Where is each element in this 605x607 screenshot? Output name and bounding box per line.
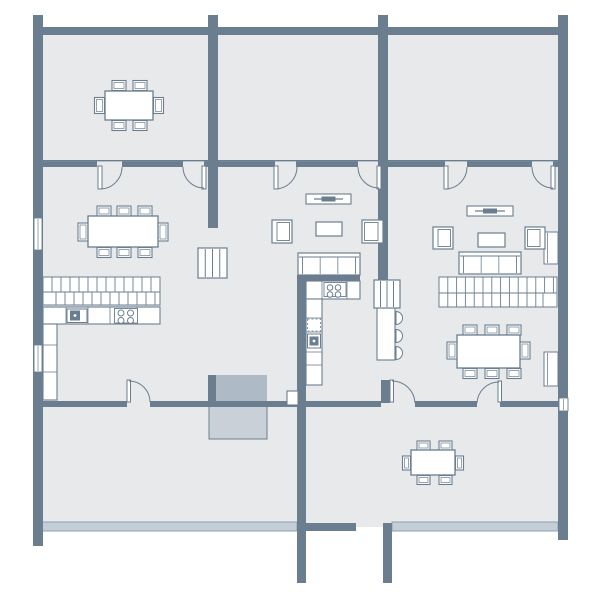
kitchen-sink — [67, 309, 87, 323]
terrace-edge-left — [38, 522, 297, 531]
coffee-table — [316, 222, 342, 236]
kitchen-counter — [43, 324, 57, 400]
wardrobe — [198, 248, 227, 278]
wall-balcony-seg — [379, 161, 445, 167]
wall-entry-right — [383, 523, 392, 583]
bar-counter — [377, 308, 395, 360]
floor-plan — [0, 0, 605, 607]
kitchen-open-shelf — [308, 319, 321, 331]
armchair — [525, 227, 545, 249]
wall-entry-top — [306, 523, 356, 531]
wall-post-left — [33, 15, 43, 546]
armchair — [272, 220, 292, 243]
staircase-left — [43, 277, 160, 305]
floor-plan-svg — [0, 0, 605, 607]
kitchen-sink — [308, 334, 321, 348]
wardrobe — [374, 280, 400, 308]
sofa — [298, 253, 360, 275]
kitchen-stove — [324, 283, 346, 298]
armchair — [433, 227, 453, 249]
patio-block-lower — [209, 406, 267, 439]
wall-cabinet — [287, 391, 298, 405]
wall-block-stub — [208, 375, 216, 406]
wall-bottom-seg — [33, 401, 127, 407]
wall-bottom-seg — [150, 401, 381, 407]
wall-balcony-seg — [296, 161, 358, 167]
wall-post-midleft — [208, 15, 218, 228]
terrace-edge-right — [392, 522, 558, 531]
wall-balcony-seg — [204, 161, 275, 167]
wall-bottom-seg — [415, 401, 477, 407]
window-sill-right-upper — [544, 232, 558, 264]
coffee-table — [478, 233, 505, 247]
wall-balcony-seg — [122, 161, 183, 167]
kitchen-stove — [115, 309, 138, 324]
wall-balcony-seg — [43, 161, 97, 167]
bar-stools — [396, 312, 403, 360]
wall-post-right — [558, 15, 568, 540]
tv-stand — [467, 206, 513, 216]
window-left-upper — [34, 218, 42, 250]
wall-bottom-seg — [500, 401, 563, 407]
armchair — [362, 220, 383, 243]
window-sill-right-lower — [544, 352, 558, 386]
sofa — [459, 252, 521, 274]
wall-balcony-seg — [467, 161, 532, 167]
wall-top — [33, 27, 568, 35]
tv-stand — [306, 194, 351, 204]
window-left-lower — [34, 345, 42, 372]
wall-balcony-threshold — [33, 160, 568, 161]
wall-mid-vertical — [297, 275, 306, 583]
window-right-post — [559, 398, 568, 411]
wall-door-stub — [381, 380, 390, 403]
kitchen-counter — [43, 307, 160, 324]
wall-kitchen-top — [297, 275, 360, 281]
staircase-right — [439, 277, 557, 307]
